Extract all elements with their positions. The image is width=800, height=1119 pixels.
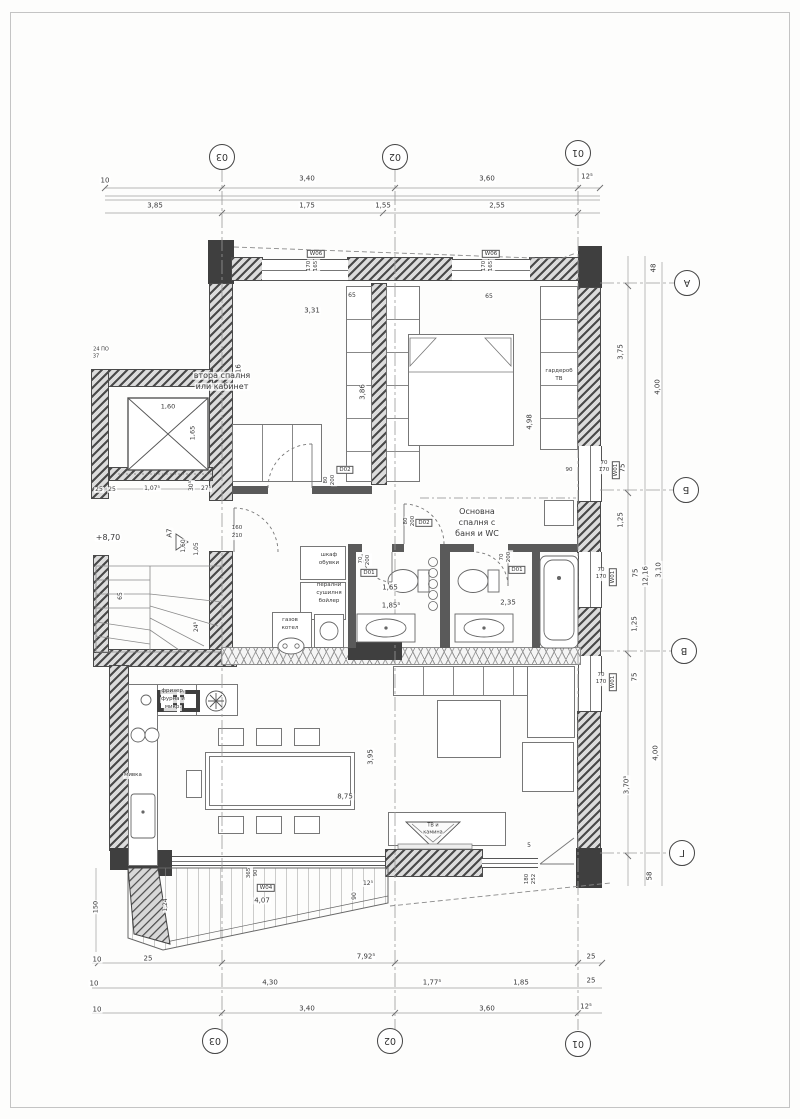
opening-tag-W06: W06 bbox=[482, 250, 500, 258]
dim-label: 3,31 bbox=[303, 307, 321, 314]
dim-label: 90 bbox=[254, 869, 260, 878]
kitchen-appliances-label: фурна и bbox=[160, 697, 186, 703]
dim-label: 3,75 bbox=[617, 343, 624, 361]
dim-label: 200 bbox=[366, 554, 372, 567]
dim-label: 365 bbox=[247, 867, 253, 880]
dim-label: 70 bbox=[600, 461, 609, 467]
floor-plan-scan: 103,403,6012⁵3,851,751,552,5517016517016… bbox=[0, 0, 800, 1119]
tv-fireplace-label: камина bbox=[422, 830, 443, 835]
dim-label: 4,00 bbox=[654, 378, 661, 396]
room-second-bedroom: втора спалня bbox=[193, 372, 251, 380]
dim-label: 4,00 bbox=[652, 744, 659, 762]
dim-label: 160 bbox=[231, 526, 244, 532]
kitchen-appliances-label: фризер, bbox=[160, 689, 185, 695]
dim-label: 25 bbox=[94, 487, 104, 493]
dim-label: 70 bbox=[597, 568, 606, 574]
dim-label: 210 bbox=[231, 534, 244, 540]
level-marker: +8,70 bbox=[95, 534, 122, 542]
opening-tag-W06: W06 bbox=[307, 250, 325, 258]
dim-label: 4,98 bbox=[526, 413, 533, 431]
dim-label: 1,75 bbox=[298, 202, 316, 209]
dim-label: 1,65 bbox=[381, 584, 399, 591]
room-master-bedroom: баня и WC bbox=[454, 530, 500, 538]
dim-label: 75 bbox=[631, 672, 638, 683]
sink-label: мивка bbox=[123, 773, 143, 779]
dim-label: 75 bbox=[632, 568, 639, 579]
wardrobe-label: гардероб bbox=[544, 369, 573, 375]
tv-fireplace-label: ТВ и bbox=[426, 823, 439, 828]
dim-label: 170 bbox=[307, 260, 313, 273]
dim-label: 252 bbox=[532, 873, 538, 886]
opening-tag-D02: D02 bbox=[415, 519, 432, 527]
dim-label: 65 bbox=[347, 293, 357, 299]
dim-label: 8,75 bbox=[336, 793, 354, 800]
dim-label: 10 bbox=[89, 980, 100, 987]
dim-label: 3,60 bbox=[478, 175, 496, 182]
dim-label: 58 bbox=[646, 871, 653, 882]
dim-label: 25 bbox=[143, 955, 154, 962]
dim-label: 3,85 bbox=[146, 202, 164, 209]
dim-label: 25 bbox=[586, 977, 597, 984]
grid-bubble-V: В bbox=[671, 638, 697, 664]
dim-label: 1,60 bbox=[160, 404, 176, 411]
dim-label: 30⁵ bbox=[189, 480, 195, 492]
dim-label: 65 bbox=[118, 591, 124, 601]
laundry-label: перални bbox=[316, 583, 343, 589]
dim-label: 1,85 bbox=[512, 979, 530, 986]
dim-label: 12⁵ bbox=[362, 881, 374, 887]
dim-label: 170 bbox=[598, 468, 611, 474]
dim-label: 24⁵ bbox=[194, 621, 200, 633]
dim-label: 170 bbox=[595, 575, 608, 581]
dim-label: 1,85⁵ bbox=[381, 602, 401, 609]
dim-label: 3,40 bbox=[298, 175, 316, 182]
dim-label: 3,60 bbox=[478, 1005, 496, 1012]
opening-tag-D01: D01 bbox=[508, 566, 525, 574]
dim-label: 1,05 bbox=[194, 541, 200, 556]
grid-bubble-layer: 030201030201АБВГ bbox=[0, 0, 800, 1119]
dim-label: 165 bbox=[489, 260, 495, 273]
dim-label: 170 bbox=[595, 680, 608, 686]
dim-label: 80 bbox=[404, 517, 410, 526]
dim-label: 90 bbox=[352, 891, 358, 901]
laundry-label: бойлер bbox=[318, 599, 341, 605]
dim-label: 1,24 bbox=[163, 897, 169, 912]
dim-label: 70 bbox=[500, 553, 506, 562]
dim-label: 70 bbox=[359, 556, 365, 565]
dim-label: 2,35 bbox=[499, 599, 517, 606]
dim-label: 3,70⁵ bbox=[623, 775, 630, 795]
dim-label: 48 bbox=[650, 263, 657, 274]
opening-tag-W01: W01 bbox=[609, 673, 617, 691]
dim-label: 70 bbox=[597, 673, 606, 679]
dim-label: 3,86 bbox=[359, 383, 366, 401]
dim-label: 1,77⁵ bbox=[422, 979, 442, 986]
gas-boiler-label: котел bbox=[281, 626, 300, 632]
dim-label: 10 bbox=[100, 177, 111, 184]
dim-label: 200 bbox=[331, 474, 337, 487]
dim-label: 12⁵ bbox=[580, 173, 594, 180]
gas-boiler-label: газов bbox=[281, 618, 299, 624]
opening-tag-D02: D02 bbox=[336, 466, 353, 474]
grid-bubble-01-top: 01 bbox=[565, 140, 591, 166]
dim-label: 90 bbox=[565, 468, 574, 474]
wardrobe-label: ТВ bbox=[554, 377, 563, 383]
room-second-bedroom: или кабинет bbox=[195, 383, 250, 391]
dim-label: 7,92⁵ bbox=[356, 953, 376, 960]
kitchen-appliances-label: микр. bbox=[164, 705, 182, 711]
dim-label: 5 bbox=[526, 843, 532, 849]
grid-bubble-02-bottom: 02 bbox=[377, 1028, 403, 1054]
opening-tag-W01: W01 bbox=[609, 568, 617, 586]
dim-label: 150 bbox=[93, 900, 100, 914]
dim-label: 65 bbox=[484, 294, 494, 300]
opening-tag-W01: W01 bbox=[612, 461, 620, 479]
dim-label: 2,55 bbox=[488, 202, 506, 209]
dim-label: 25 bbox=[586, 953, 597, 960]
dim-label: 165 bbox=[314, 260, 320, 273]
dim-label: 1,60 bbox=[181, 538, 187, 553]
shoe-cabinet-label: шкаф bbox=[320, 553, 338, 559]
grid-bubble-A: А bbox=[674, 270, 700, 296]
room-master-bedroom: Основна bbox=[458, 508, 496, 516]
section-marker: А7 bbox=[166, 527, 173, 538]
dim-label: 1,07⁵ bbox=[143, 486, 161, 492]
laundry-label: сушилня bbox=[315, 591, 342, 597]
grid-bubble-01-bottom: 01 bbox=[565, 1031, 591, 1057]
dim-label: 12⁵ bbox=[579, 1003, 593, 1010]
grid-bubble-03-bottom: 03 bbox=[202, 1028, 228, 1054]
dim-label: 3,95 bbox=[367, 748, 374, 766]
dim-label: 3,40 bbox=[298, 1005, 316, 1012]
shoe-cabinet-label: обувки bbox=[318, 561, 340, 567]
opening-tag-D01: D01 bbox=[360, 569, 377, 577]
dim-label: 4,30 bbox=[261, 979, 279, 986]
dim-label: 1,25 bbox=[631, 615, 638, 633]
dim-label: 1,55 bbox=[374, 202, 392, 209]
dim-label: 27⁵ bbox=[200, 486, 212, 492]
grid-bubble-02-top: 02 bbox=[382, 144, 408, 170]
room-master-bedroom: спалня с bbox=[458, 519, 497, 527]
dim-label: 4,07 bbox=[253, 897, 271, 904]
grid-bubble-G: Г bbox=[669, 840, 695, 866]
dim-label: 3,10 bbox=[655, 561, 662, 579]
dim-label: 25 bbox=[107, 487, 117, 493]
dim-label: 12,16 bbox=[642, 565, 649, 587]
dim-label: 170 bbox=[482, 260, 488, 273]
dim-label: 10 bbox=[92, 1006, 103, 1013]
dim-label: 200 bbox=[507, 551, 513, 564]
grid-bubble-B: Б bbox=[673, 477, 699, 503]
opening-tag-W04: W04 bbox=[257, 884, 275, 892]
dim-label: 10 bbox=[92, 956, 103, 963]
dim-label: 1,65 bbox=[190, 425, 197, 441]
tiny-note: 24 ПО bbox=[92, 347, 110, 352]
dim-label: 80 bbox=[324, 476, 330, 485]
tiny-note: 37 bbox=[92, 354, 100, 359]
dim-label: 180 bbox=[525, 873, 531, 886]
dim-label: 1,25 bbox=[617, 511, 624, 529]
dim-label: 75 bbox=[619, 463, 626, 474]
grid-bubble-03-top: 03 bbox=[209, 144, 235, 170]
